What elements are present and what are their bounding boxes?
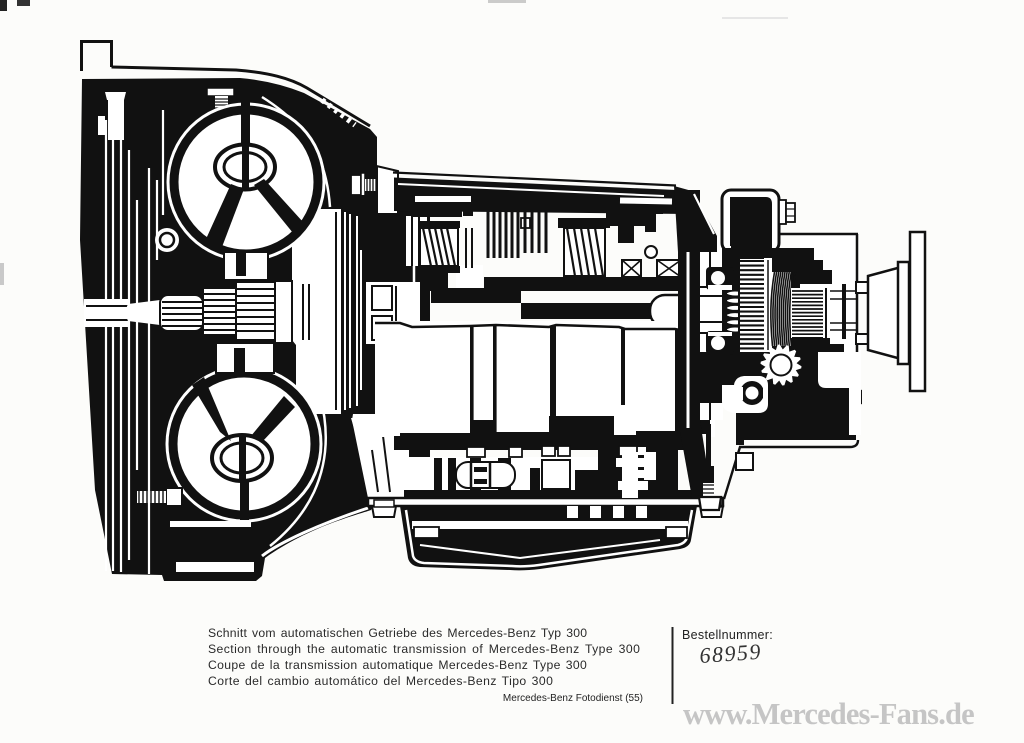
svg-text:Section through the automatic: Section through the automatic transmissi…: [208, 642, 640, 656]
svg-text:www.Mercedes-Fans.de: www.Mercedes-Fans.de: [683, 697, 974, 731]
svg-text:68959: 68959: [699, 639, 763, 668]
svg-text:Schnitt vom automatischen Getr: Schnitt vom automatischen Getriebe des M…: [208, 626, 587, 640]
svg-text:Corte del cambio automático de: Corte del cambio automático del Mercedes…: [208, 674, 553, 688]
svg-text:Mercedes-Benz Fotodienst (55): Mercedes-Benz Fotodienst (55): [503, 693, 643, 704]
svg-text:Coupe de la transmission autom: Coupe de la transmission automatique Mer…: [208, 658, 587, 672]
